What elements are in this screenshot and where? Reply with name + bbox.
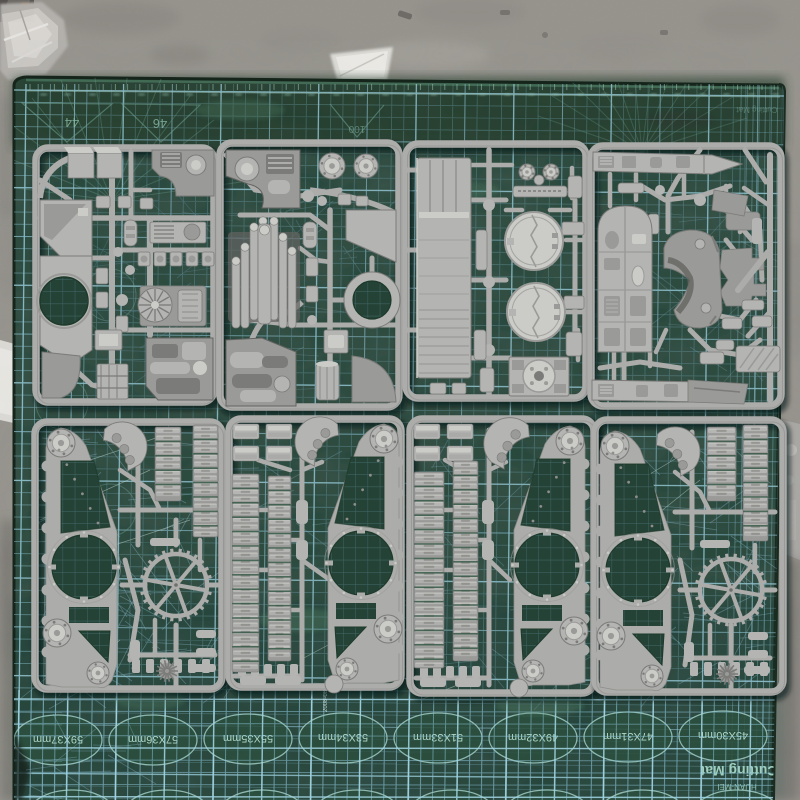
svg-text:51X33mm: 51X33mm (413, 731, 463, 743)
svg-text:Cutting Mat: Cutting Mat (736, 105, 778, 114)
svg-text:HUAN-MEI: HUAN-MEI (717, 782, 757, 791)
svg-text:49X32mm: 49X32mm (508, 731, 558, 743)
svg-text:45X30mm: 45X30mm (698, 729, 748, 741)
svg-text:Cutting Mat: Cutting Mat (700, 763, 777, 779)
svg-text:55X35mm: 55X35mm (223, 732, 273, 744)
svg-text:59X37mm: 59X37mm (33, 733, 83, 745)
svg-text:100: 100 (348, 123, 365, 134)
